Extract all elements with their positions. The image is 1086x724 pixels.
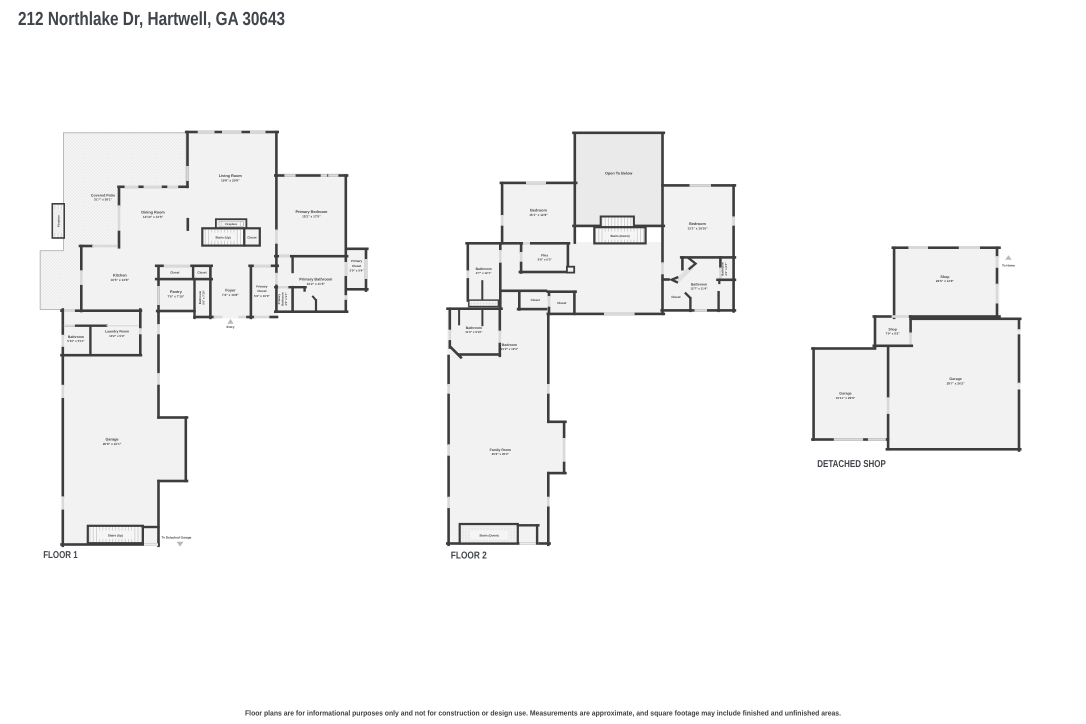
svg-text:DETACHED SHOP: DETACHED SHOP <box>817 459 886 470</box>
svg-text:25’2” x 35’3”: 25’2” x 35’3” <box>492 452 510 456</box>
svg-text:Primary: Primary <box>351 259 363 263</box>
svg-text:Primary Bedroom: Primary Bedroom <box>295 210 327 214</box>
svg-text:Closet: Closet <box>257 289 266 293</box>
svg-text:11’0” x 9’10”: 11’0” x 9’10” <box>465 330 483 334</box>
svg-text:13’1” x 19’10”: 13’1” x 19’10” <box>687 227 708 231</box>
svg-text:3’9” x 7’10”: 3’9” x 7’10” <box>202 290 205 305</box>
svg-text:7’6” x 7’10”: 7’6” x 7’10” <box>167 295 184 299</box>
svg-text:7’4” x 10’8”: 7’4” x 10’8” <box>222 293 239 297</box>
svg-text:Open To Below: Open To Below <box>605 172 632 176</box>
svg-text:FLOOR 1: FLOOR 1 <box>43 550 78 561</box>
svg-text:14’10” x 13’5”: 14’10” x 13’5” <box>143 215 164 219</box>
svg-text:15’1” x 12’8”: 15’1” x 12’8” <box>529 213 548 217</box>
svg-text:4’5” x 8’2”: 4’5” x 8’2” <box>725 262 728 276</box>
svg-text:21’2” x 19’3”: 21’2” x 19’3” <box>501 347 519 351</box>
svg-text:Closet: Closet <box>247 235 256 239</box>
svg-text:Entry: Entry <box>227 325 235 329</box>
svg-text:Family Room: Family Room <box>490 448 511 452</box>
svg-text:Garage: Garage <box>839 392 851 396</box>
svg-text:Garage: Garage <box>949 377 961 381</box>
svg-text:15’11” x 29’9”: 15’11” x 29’9” <box>836 396 856 400</box>
svg-text:Bathroom: Bathroom <box>721 262 725 276</box>
svg-text:15’2” x 17’5”: 15’2” x 17’5” <box>302 214 321 218</box>
svg-text:Stairs (Down): Stairs (Down) <box>610 234 629 238</box>
svg-text:7’9” x 8’2”: 7’9” x 8’2” <box>886 332 901 336</box>
svg-text:Stairs (Up): Stairs (Up) <box>108 534 123 538</box>
svg-text:Closet: Closet <box>170 271 179 275</box>
svg-text:Dining Room: Dining Room <box>141 211 165 215</box>
svg-text:16’5” x 13’8”: 16’5” x 13’8” <box>111 278 130 282</box>
svg-text:Floor plans are for informatio: Floor plans are for informational purpos… <box>245 709 841 718</box>
svg-text:Shop: Shop <box>940 275 950 279</box>
svg-text:4’9” x 9’1”: 4’9” x 9’1” <box>285 292 288 306</box>
svg-text:To Home: To Home <box>1002 263 1015 267</box>
svg-text:Closet: Closet <box>352 264 361 268</box>
svg-text:4’7” x 12’1”: 4’7” x 12’1” <box>476 271 492 275</box>
svg-text:Stairs (Up): Stairs (Up) <box>215 235 230 239</box>
svg-text:Bedroom: Bedroom <box>530 209 547 213</box>
svg-text:Closet: Closet <box>531 298 540 302</box>
svg-text:5’2” x 10’9”: 5’2” x 10’9” <box>254 294 270 298</box>
svg-text:5’10” x 5’11”: 5’10” x 5’11” <box>67 339 85 343</box>
svg-text:12’7” x 11’4”: 12’7” x 11’4” <box>690 287 708 291</box>
svg-text:28’7” x 24’2”: 28’7” x 24’2” <box>947 381 966 385</box>
svg-text:31’7” x 36’1”: 31’7” x 36’1” <box>94 198 113 202</box>
svg-text:Pantry: Pantry <box>170 290 183 294</box>
svg-text:19’8” x 20’8”: 19’8” x 20’8” <box>221 179 240 183</box>
svg-text:3’9” x 9’4”: 3’9” x 9’4” <box>350 268 365 272</box>
svg-text:Garage: Garage <box>105 437 118 441</box>
svg-text:Closet: Closet <box>197 271 206 275</box>
svg-text:To Detached Garage: To Detached Garage <box>161 535 191 539</box>
svg-text:Primary: Primary <box>256 285 268 289</box>
svg-text:Stairs (Down): Stairs (Down) <box>479 534 498 538</box>
svg-text:10’2” x 9’4”: 10’2” x 9’4” <box>109 334 125 338</box>
svg-text:Living Room: Living Room <box>219 174 243 178</box>
svg-text:Bathroom: Bathroom <box>198 290 202 304</box>
svg-text:Covered Patio: Covered Patio <box>91 193 116 197</box>
svg-text:212 Northlake Dr, Hartwell, GA: 212 Northlake Dr, Hartwell, GA 30643 <box>18 9 285 30</box>
svg-text:22’6” x 14’9”: 22’6” x 14’9” <box>936 279 955 283</box>
svg-text:Kitchen: Kitchen <box>113 273 128 277</box>
svg-text:Foyer: Foyer <box>225 289 236 293</box>
svg-text:9’8” x 6’3”: 9’8” x 6’3” <box>538 258 553 262</box>
svg-text:Bedroom: Bedroom <box>689 222 706 226</box>
svg-text:10’2” x 11’5”: 10’2” x 11’5” <box>307 282 326 286</box>
svg-text:Closet: Closet <box>671 295 680 299</box>
svg-text:Fireplace: Fireplace <box>58 215 61 227</box>
svg-text:Fireplace: Fireplace <box>225 223 237 226</box>
svg-text:26’8” x 41’1”: 26’8” x 41’1” <box>103 442 122 446</box>
svg-text:FLOOR 2: FLOOR 2 <box>451 551 487 562</box>
svg-text:Bathroom: Bathroom <box>280 292 284 306</box>
svg-text:Closet: Closet <box>557 301 566 305</box>
